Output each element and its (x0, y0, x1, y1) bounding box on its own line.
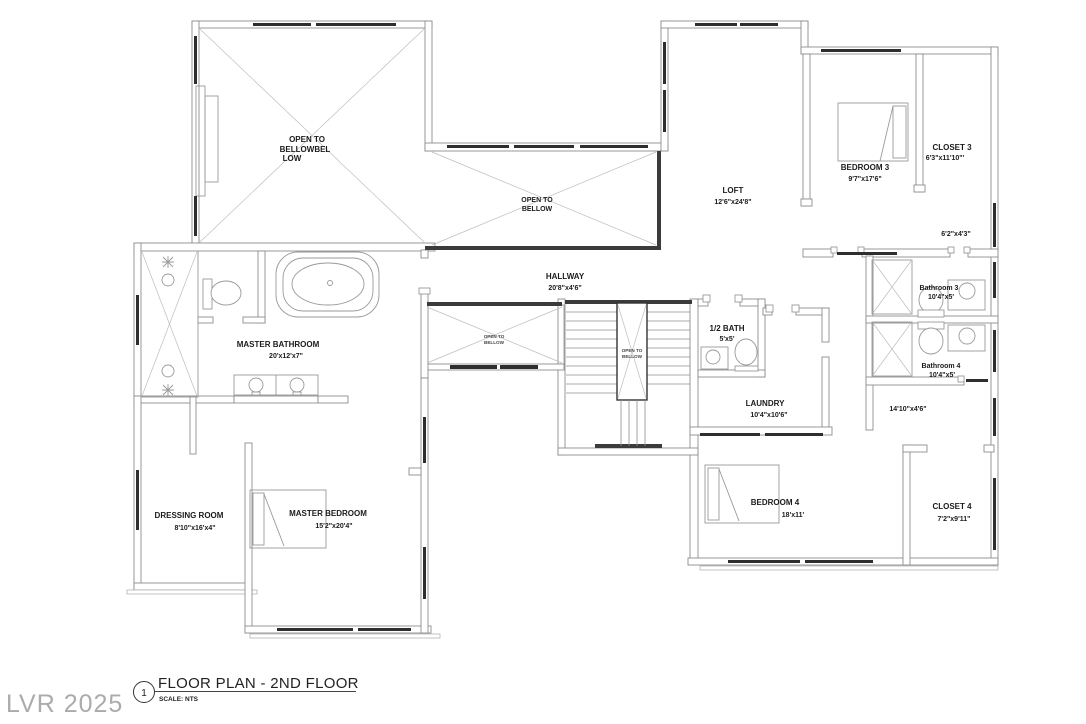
bedroom3-dims: 9'7"x17'6" (848, 176, 881, 183)
laundry-dims: 10'4"x10'6" (750, 412, 787, 419)
laundry-name: LAUNDRY (746, 399, 785, 408)
bedroom4-bed (705, 465, 779, 523)
master-bed (250, 490, 326, 548)
staircase (566, 303, 690, 446)
closet3-name: CLOSET 3 (932, 143, 972, 152)
master-bath-name: MASTER BATHROOM (237, 340, 320, 349)
half-bath-name: 1/2 BATH (710, 324, 745, 333)
closet4-name: CLOSET 4 (932, 502, 972, 511)
closet4-dims: 7'2"x9'11" (938, 516, 971, 523)
master-bedroom-name: MASTER BEDROOM (289, 509, 367, 518)
open-stair-label-1: OPEN TO (622, 348, 643, 353)
watermark: LVR 2025 (6, 690, 123, 718)
open-main-label-1: OPEN TO (289, 135, 325, 144)
floor-plan-drawing: OPEN TO BELLOWBEL LOW OPEN TO BELLOW LOF… (0, 0, 1086, 724)
bedroom4-dims: 18'x11' (782, 512, 805, 519)
dressing-dims: 8'10"x16'x4" (174, 525, 215, 532)
hallway-dims: 20'8"x4'6" (548, 285, 581, 292)
dressing-name: DRESSING ROOM (155, 511, 224, 520)
open-hall-label-1: OPEN TO (484, 334, 505, 339)
master-vanity (234, 375, 318, 396)
nook-dims: 6'2"x4'3" (941, 231, 970, 238)
open-upper-label-2: BELLOW (522, 206, 553, 213)
open-hall-label-2: BELLOW (484, 340, 505, 345)
bathroom3-name: Bathroom 3 (920, 285, 959, 292)
floor-plan-page: OPEN TO BELLOWBEL LOW OPEN TO BELLOW LOF… (0, 0, 1086, 724)
title-block: 1 FLOOR PLAN - 2ND FLOOR SCALE: NTS (134, 675, 359, 703)
open-stair-label-2: BELLOW (622, 354, 643, 359)
bedroom3-bed (838, 103, 908, 161)
master-shower (141, 251, 198, 397)
half-bath-dims: 5'x5' (719, 336, 734, 343)
master-toilet (203, 279, 241, 309)
sheet-number: 1 (141, 688, 147, 699)
half-bath-fixtures (701, 339, 758, 371)
bathroom4-dims: 10'4"x5' (929, 372, 955, 379)
walls (127, 21, 998, 638)
stair-railing (621, 400, 645, 446)
bedroom3-name: BEDROOM 3 (841, 163, 890, 172)
open-main-label-2: BELLOWBEL (280, 145, 331, 154)
hallway-name: HALLWAY (546, 272, 585, 281)
master-bathtub (276, 252, 379, 317)
master-bath-dims: 20'x12'x7" (269, 353, 303, 360)
open-main-label-3: LOW (283, 154, 302, 163)
bathroom3-dims: 10'4"x5' (928, 294, 954, 301)
corridor-dims: 14'10"x4'6" (889, 406, 926, 413)
drawing-scale: SCALE: NTS (159, 696, 199, 703)
closet3-dims: 6'3"x11'10"' (926, 155, 965, 162)
open-upper-label-1: OPEN TO (521, 197, 553, 204)
loft-dims: 12'6"x24'8" (714, 199, 751, 206)
bathroom4-name: Bathroom 4 (922, 363, 961, 370)
drawing-title: FLOOR PLAN - 2ND FLOOR (158, 675, 359, 692)
loft-name: LOFT (723, 186, 744, 195)
master-bedroom-dims: 15'2"x20'4" (315, 523, 352, 530)
bedroom4-name: BEDROOM 4 (751, 498, 800, 507)
